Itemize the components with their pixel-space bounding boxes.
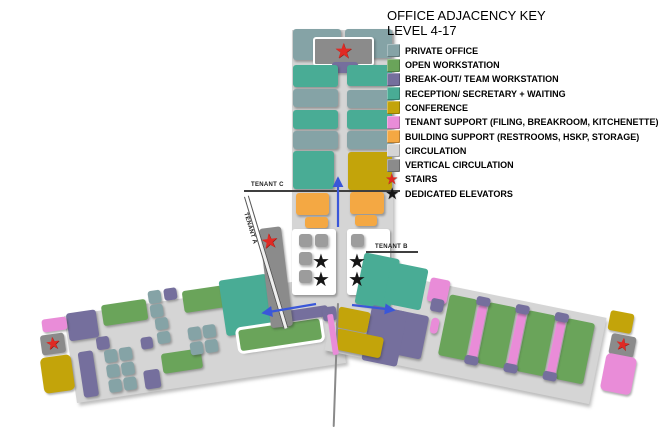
room-private-office bbox=[189, 341, 204, 356]
elevator-cell bbox=[299, 234, 312, 247]
room-private-office bbox=[123, 376, 138, 391]
room-breakout bbox=[140, 336, 154, 350]
left-wing-rooms bbox=[64, 276, 346, 403]
tenant-b-label: TENANT B bbox=[375, 244, 408, 250]
legend-item-label: RECEPTION/ SECRETARY + WAITING bbox=[405, 89, 566, 99]
tenant-c-line bbox=[244, 190, 400, 192]
room-private-office bbox=[156, 331, 171, 345]
room-private-office bbox=[108, 378, 123, 393]
legend-item-label: CIRCULATION bbox=[405, 146, 466, 156]
elevator-cell bbox=[299, 252, 312, 265]
room-breakout bbox=[78, 350, 100, 398]
room-private-office bbox=[347, 131, 392, 149]
room-private-office bbox=[118, 346, 133, 361]
room-private-office bbox=[204, 339, 219, 354]
legend-swatch bbox=[387, 73, 400, 86]
elevator-cell bbox=[351, 234, 364, 247]
room-reception bbox=[347, 65, 392, 86]
room-breakout bbox=[503, 362, 519, 374]
legend-item-label: VERTICAL CIRCULATION bbox=[405, 160, 514, 170]
legend-item: OPEN WORKSTATION bbox=[387, 58, 659, 72]
room-reception bbox=[383, 262, 429, 311]
room-private-office bbox=[106, 363, 121, 378]
legend-item-label: BREAK-OUT/ TEAM WORKSTATION bbox=[405, 74, 559, 84]
legend-item-label: DEDICATED ELEVATORS bbox=[405, 189, 513, 199]
tenant-c-label: TENANT C bbox=[251, 182, 284, 188]
legend-item: CIRCULATION bbox=[387, 144, 659, 158]
room-private-office bbox=[147, 289, 162, 304]
star-icon: ★ bbox=[385, 187, 400, 200]
legend: OFFICE ADJACENCY KEY LEVEL 4-17 PRIVATE … bbox=[387, 8, 659, 201]
legend-item: RECEPTION/ SECRETARY + WAITING bbox=[387, 87, 659, 101]
room-breakout bbox=[430, 298, 445, 313]
room-reception bbox=[293, 110, 338, 129]
room-private-office bbox=[154, 317, 169, 331]
room-reception bbox=[347, 110, 392, 129]
legend-swatch bbox=[387, 130, 400, 143]
room-building-support bbox=[305, 217, 328, 228]
room-private-office bbox=[293, 131, 338, 149]
room-private-office bbox=[347, 90, 392, 108]
legend-subtitle: LEVEL 4-17 bbox=[387, 23, 659, 38]
stairs-star-icon: ★ bbox=[44, 335, 61, 354]
room-open-workstation bbox=[101, 299, 149, 326]
room-conference bbox=[607, 310, 634, 334]
stair-block: ★ bbox=[313, 37, 374, 66]
tenant-b-line bbox=[366, 251, 418, 253]
legend-item: BUILDING SUPPORT (RESTROOMS, HSKP, STORA… bbox=[387, 129, 659, 143]
elevator-star-icon: ★ bbox=[348, 269, 366, 289]
right-wing-rooms bbox=[324, 264, 606, 404]
room-building-support bbox=[355, 215, 377, 226]
stairs-star-icon: ★ bbox=[613, 336, 631, 356]
legend-item: TENANT SUPPORT (FILING, BREAKROOM, KITCH… bbox=[387, 115, 659, 129]
elevator-cell bbox=[315, 234, 328, 247]
room-breakout bbox=[96, 336, 111, 351]
room-tenant-support bbox=[429, 317, 440, 334]
room-breakout bbox=[66, 309, 100, 341]
legend-title: OFFICE ADJACENCY KEY bbox=[387, 8, 659, 23]
room-reception bbox=[293, 65, 338, 87]
legend-item: PRIVATE OFFICE bbox=[387, 44, 659, 58]
legend-swatch bbox=[387, 59, 400, 72]
elevator-star-icon: ★ bbox=[312, 269, 330, 289]
legend-swatch bbox=[387, 144, 400, 157]
legend-item: VERTICAL CIRCULATION bbox=[387, 158, 659, 172]
legend-item: ★ STAIRS bbox=[387, 172, 659, 186]
legend-swatch bbox=[387, 87, 400, 100]
legend-swatch bbox=[387, 101, 400, 114]
legend-item-label: TENANT SUPPORT (FILING, BREAKROOM, KITCH… bbox=[405, 117, 659, 127]
legend-item-label: BUILDING SUPPORT (RESTROOMS, HSKP, STORA… bbox=[405, 132, 639, 142]
room-breakout bbox=[143, 369, 162, 390]
room-private-office bbox=[187, 326, 202, 341]
office-adjacency-diagram: ★ ★ ★ ★ ★ bbox=[0, 0, 670, 433]
room-building-support bbox=[296, 193, 329, 215]
legend-item: ★ DEDICATED ELEVATORS bbox=[387, 187, 659, 201]
room-private-office bbox=[104, 349, 119, 364]
room-private-office bbox=[149, 303, 164, 318]
room-conference bbox=[40, 354, 76, 394]
room-private-office bbox=[293, 89, 338, 107]
legend-swatch bbox=[387, 44, 400, 57]
stairs-star-icon: ★ bbox=[334, 41, 353, 62]
legend-item: CONFERENCE bbox=[387, 101, 659, 115]
legend-item: BREAK-OUT/ TEAM WORKSTATION bbox=[387, 72, 659, 86]
legend-list: PRIVATE OFFICE OPEN WORKSTATION BREAK-OU… bbox=[387, 44, 659, 201]
legend-item-label: CONFERENCE bbox=[405, 103, 468, 113]
room-breakout bbox=[163, 287, 178, 301]
room-reception bbox=[293, 151, 334, 189]
room-building-support bbox=[350, 192, 384, 214]
stair-block: ★ bbox=[40, 332, 67, 355]
legend-swatch bbox=[387, 116, 400, 129]
room-tenant-support bbox=[600, 352, 638, 395]
legend-item-label: STAIRS bbox=[405, 174, 437, 184]
room-private-office bbox=[202, 324, 217, 339]
legend-item-label: OPEN WORKSTATION bbox=[405, 60, 500, 70]
room-breakout bbox=[464, 354, 480, 366]
legend-item-label: PRIVATE OFFICE bbox=[405, 46, 478, 56]
room-tenant-support bbox=[41, 316, 68, 332]
room-private-office bbox=[121, 361, 136, 376]
room-breakout bbox=[542, 370, 558, 382]
